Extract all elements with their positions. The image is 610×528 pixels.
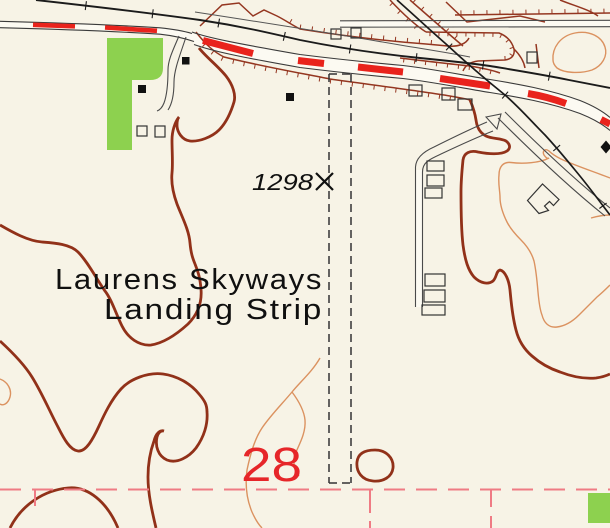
svg-text:Laurens Skyways: Laurens Skyways (55, 264, 323, 296)
svg-text:28: 28 (241, 439, 302, 492)
svg-text:1298: 1298 (252, 169, 313, 195)
svg-text:Landing Strip: Landing Strip (104, 294, 323, 326)
